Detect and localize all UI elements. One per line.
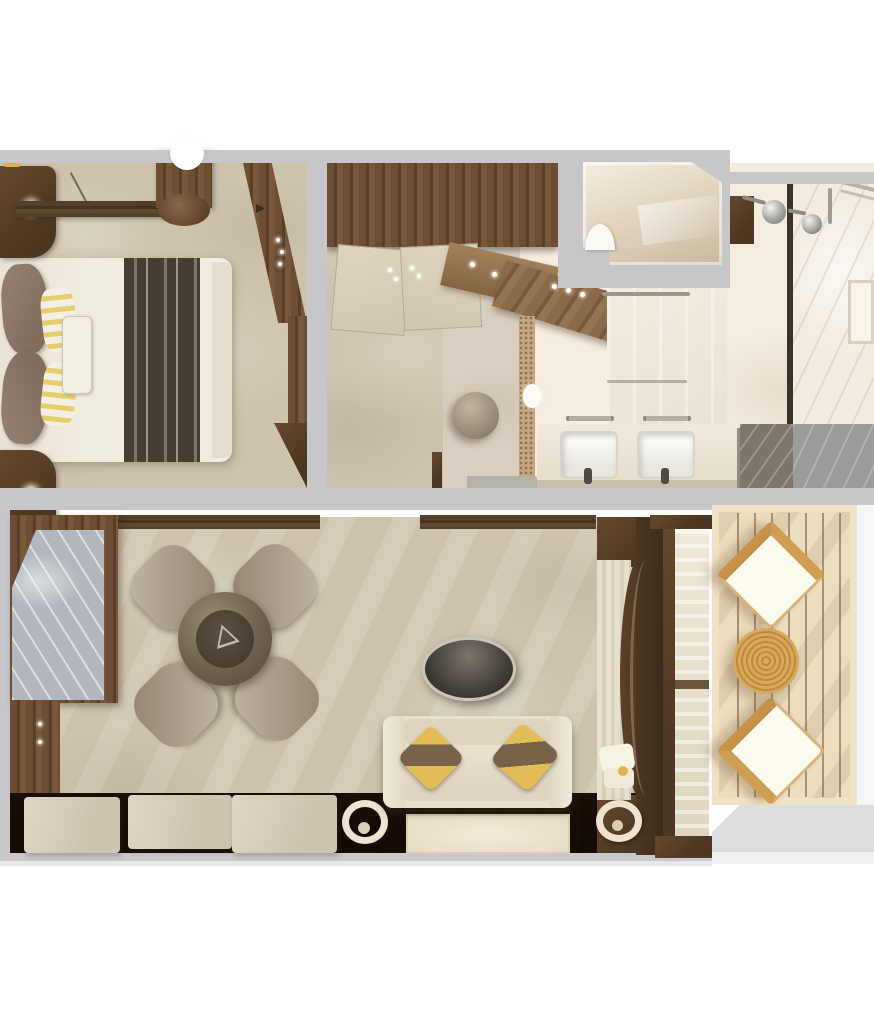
towel-bar [643, 416, 691, 421]
door-hinge-dot [417, 274, 421, 278]
vanity-knob [566, 288, 571, 293]
area-rug [406, 814, 570, 854]
balcony-door-frame [663, 517, 675, 858]
vanity-knob [552, 284, 557, 289]
faucet-icon [584, 468, 592, 484]
marble-bar-top [12, 530, 104, 700]
balcony-lower-platform [712, 805, 874, 855]
door-hinge-dot [410, 266, 414, 270]
door-hinge-dot [388, 268, 392, 272]
bed-foot-bench [212, 262, 232, 458]
bed-runner [124, 258, 200, 462]
pillow-lumbar [62, 316, 92, 394]
dressing-wall-sliver [432, 452, 442, 488]
sculpture-ball [612, 820, 623, 831]
yellow-decor-dot [618, 766, 628, 776]
platform-edge [712, 852, 874, 864]
towel-bar [566, 416, 614, 421]
door-hinge-dot [276, 238, 280, 242]
rain-shower-head-icon [762, 200, 786, 224]
hand-shower-bar [828, 188, 832, 224]
shower-window [848, 280, 874, 344]
shower-wood-shelf [728, 196, 754, 244]
door-hinge-dot [394, 277, 398, 281]
door-hinge-dot [280, 250, 284, 254]
rain-shower-head-icon [802, 214, 822, 234]
sculpture-ball [358, 822, 370, 834]
sparkle-light-icon [470, 262, 475, 267]
wall-top-right [727, 172, 874, 184]
balcony-door-mid-rail [675, 680, 709, 689]
faucet-icon [661, 468, 669, 484]
bench-cushion [128, 795, 232, 849]
round-pouf [452, 392, 499, 439]
rattan-round-table [733, 628, 799, 694]
balcony-door-bottom-cap [655, 836, 712, 858]
balcony-door-top-cap [650, 515, 712, 529]
closet-wardrobe [327, 163, 558, 247]
wall-top-left [0, 150, 560, 163]
vanity-front-edge [537, 480, 737, 488]
vanity-knob [580, 292, 585, 297]
curve-highlight [630, 560, 663, 796]
wall-left-living [0, 510, 10, 855]
cabinet-handle [38, 722, 42, 726]
bench-cushion [24, 797, 120, 853]
wall-bedroom-closet [307, 163, 327, 488]
bench-cushion [232, 795, 337, 853]
entry-notch-circle [170, 136, 204, 170]
towel-bar [602, 292, 690, 296]
floorplan-page [0, 0, 874, 1024]
table-inner-circle [196, 610, 254, 668]
living-lintel [420, 515, 596, 529]
wall-sconce [523, 384, 541, 408]
sparkle-light-icon [492, 272, 497, 277]
balcony-white-strip [857, 505, 874, 813]
bedroom-side-wall [288, 316, 307, 428]
cabinet-handle [38, 740, 42, 744]
shower-floor-outer [793, 424, 874, 488]
door-hinge-dot [278, 262, 282, 266]
oval-coffee-table [422, 637, 516, 701]
column-round-cap [158, 194, 210, 226]
towel-bar [607, 380, 687, 383]
shower-floor-dark-marble [740, 424, 793, 488]
